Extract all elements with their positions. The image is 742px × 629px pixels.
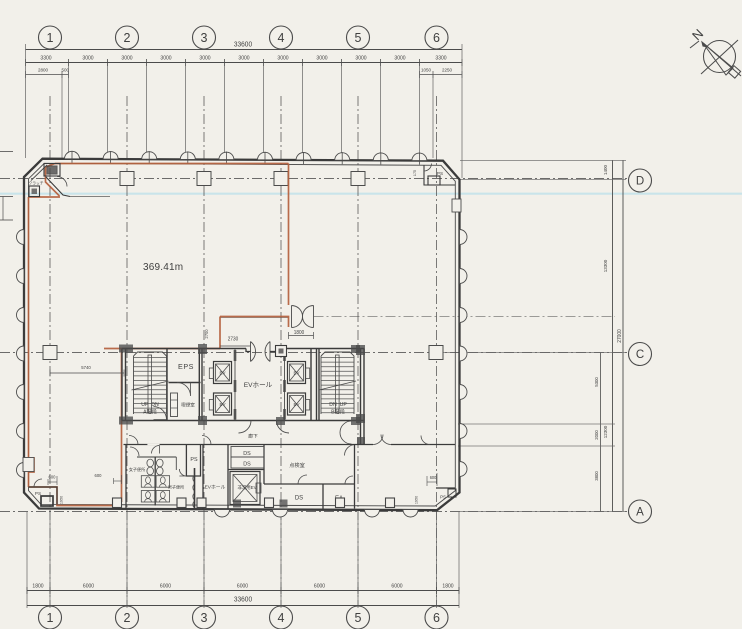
svg-text:B階段: B階段 — [331, 408, 345, 416]
svg-text:非常用EV: 非常用EV — [237, 484, 256, 491]
svg-text:EV: EV — [219, 402, 225, 407]
svg-text:A階段: A階段 — [143, 408, 157, 416]
svg-text:DS: DS — [295, 496, 303, 502]
svg-text:1: 1 — [47, 611, 54, 625]
svg-text:EVホール: EVホール — [205, 485, 226, 491]
svg-text:1800: 1800 — [294, 330, 305, 336]
svg-text:3000: 3000 — [121, 56, 132, 62]
svg-text:600: 600 — [95, 473, 102, 478]
svg-text:5300: 5300 — [594, 377, 599, 387]
svg-text:男子便所: 男子便所 — [168, 484, 184, 490]
svg-text:2000: 2000 — [594, 430, 599, 440]
svg-text:点検室: 点検室 — [289, 461, 305, 469]
svg-text:EV: EV — [219, 371, 225, 376]
svg-text:女子便所: 女子便所 — [129, 466, 145, 472]
svg-text:2800: 2800 — [38, 68, 48, 74]
svg-text:2: 2 — [124, 31, 131, 45]
svg-text:3000: 3000 — [394, 56, 405, 62]
svg-text:1: 1 — [47, 31, 54, 45]
svg-text:クラッチ: クラッチ — [28, 181, 43, 186]
svg-text:3800: 3800 — [594, 471, 599, 481]
svg-text:EV: EV — [293, 371, 299, 376]
svg-text:2730: 2730 — [228, 337, 239, 343]
svg-text:3000: 3000 — [316, 56, 327, 62]
svg-text:3300: 3300 — [435, 56, 446, 62]
svg-text:13300: 13300 — [603, 259, 609, 272]
svg-text:33600: 33600 — [234, 597, 252, 604]
svg-text:4: 4 — [278, 31, 285, 45]
svg-text:廊下: 廊下 — [248, 433, 258, 440]
svg-text:175: 175 — [412, 169, 417, 176]
svg-text:1050: 1050 — [421, 68, 431, 74]
svg-text:3000: 3000 — [160, 56, 171, 62]
svg-text:4: 4 — [278, 611, 285, 625]
svg-text:1800: 1800 — [442, 584, 453, 590]
svg-text:PS: PS — [190, 457, 198, 463]
svg-text:喫煙室: 喫煙室 — [181, 402, 195, 409]
svg-text:D: D — [636, 176, 644, 188]
svg-text:33600: 33600 — [234, 42, 252, 49]
svg-text:5: 5 — [355, 31, 362, 45]
svg-text:3000: 3000 — [238, 56, 249, 62]
svg-text:2: 2 — [124, 611, 131, 625]
svg-text:A: A — [636, 507, 644, 519]
svg-text:12300: 12300 — [603, 425, 609, 438]
svg-text:1950: 1950 — [59, 495, 64, 504]
svg-text:3000: 3000 — [277, 56, 288, 62]
svg-text:1400: 1400 — [603, 165, 609, 175]
svg-text:EPS: EPS — [178, 362, 194, 371]
svg-text:3: 3 — [201, 31, 208, 45]
svg-text:DS: DS — [243, 462, 251, 468]
svg-text:PS: PS — [35, 491, 41, 496]
svg-text:DS: DS — [243, 451, 251, 457]
svg-text:6000: 6000 — [83, 584, 94, 590]
svg-text:6: 6 — [433, 31, 440, 45]
svg-text:DN UP: DN UP — [329, 402, 347, 408]
svg-text:369.41m: 369.41m — [143, 262, 183, 273]
svg-text:6000: 6000 — [314, 584, 325, 590]
svg-text:6000: 6000 — [160, 584, 171, 590]
svg-text:EVホール: EVホール — [244, 381, 273, 389]
svg-text:3000: 3000 — [82, 56, 93, 62]
svg-text:1950: 1950 — [414, 495, 419, 504]
svg-text:C: C — [636, 349, 644, 361]
svg-text:2700: 2700 — [204, 329, 209, 339]
svg-text:2250: 2250 — [442, 68, 452, 74]
svg-text:3000: 3000 — [199, 56, 210, 62]
svg-text:EV: EV — [293, 402, 299, 407]
svg-text:6000: 6000 — [391, 584, 402, 590]
svg-text:3000: 3000 — [355, 56, 366, 62]
svg-text:3: 3 — [201, 611, 208, 625]
svg-text:600: 600 — [430, 475, 437, 480]
svg-text:6000: 6000 — [237, 584, 248, 590]
svg-text:PS: PS — [437, 171, 443, 176]
svg-text:5740: 5740 — [81, 365, 91, 370]
svg-text:3300: 3300 — [40, 56, 51, 62]
svg-text:6: 6 — [433, 611, 440, 625]
svg-text:1800: 1800 — [32, 584, 43, 590]
svg-text:27000: 27000 — [617, 329, 623, 343]
svg-text:600: 600 — [49, 475, 56, 480]
svg-text:PS: PS — [440, 495, 446, 500]
svg-text:5: 5 — [355, 611, 362, 625]
